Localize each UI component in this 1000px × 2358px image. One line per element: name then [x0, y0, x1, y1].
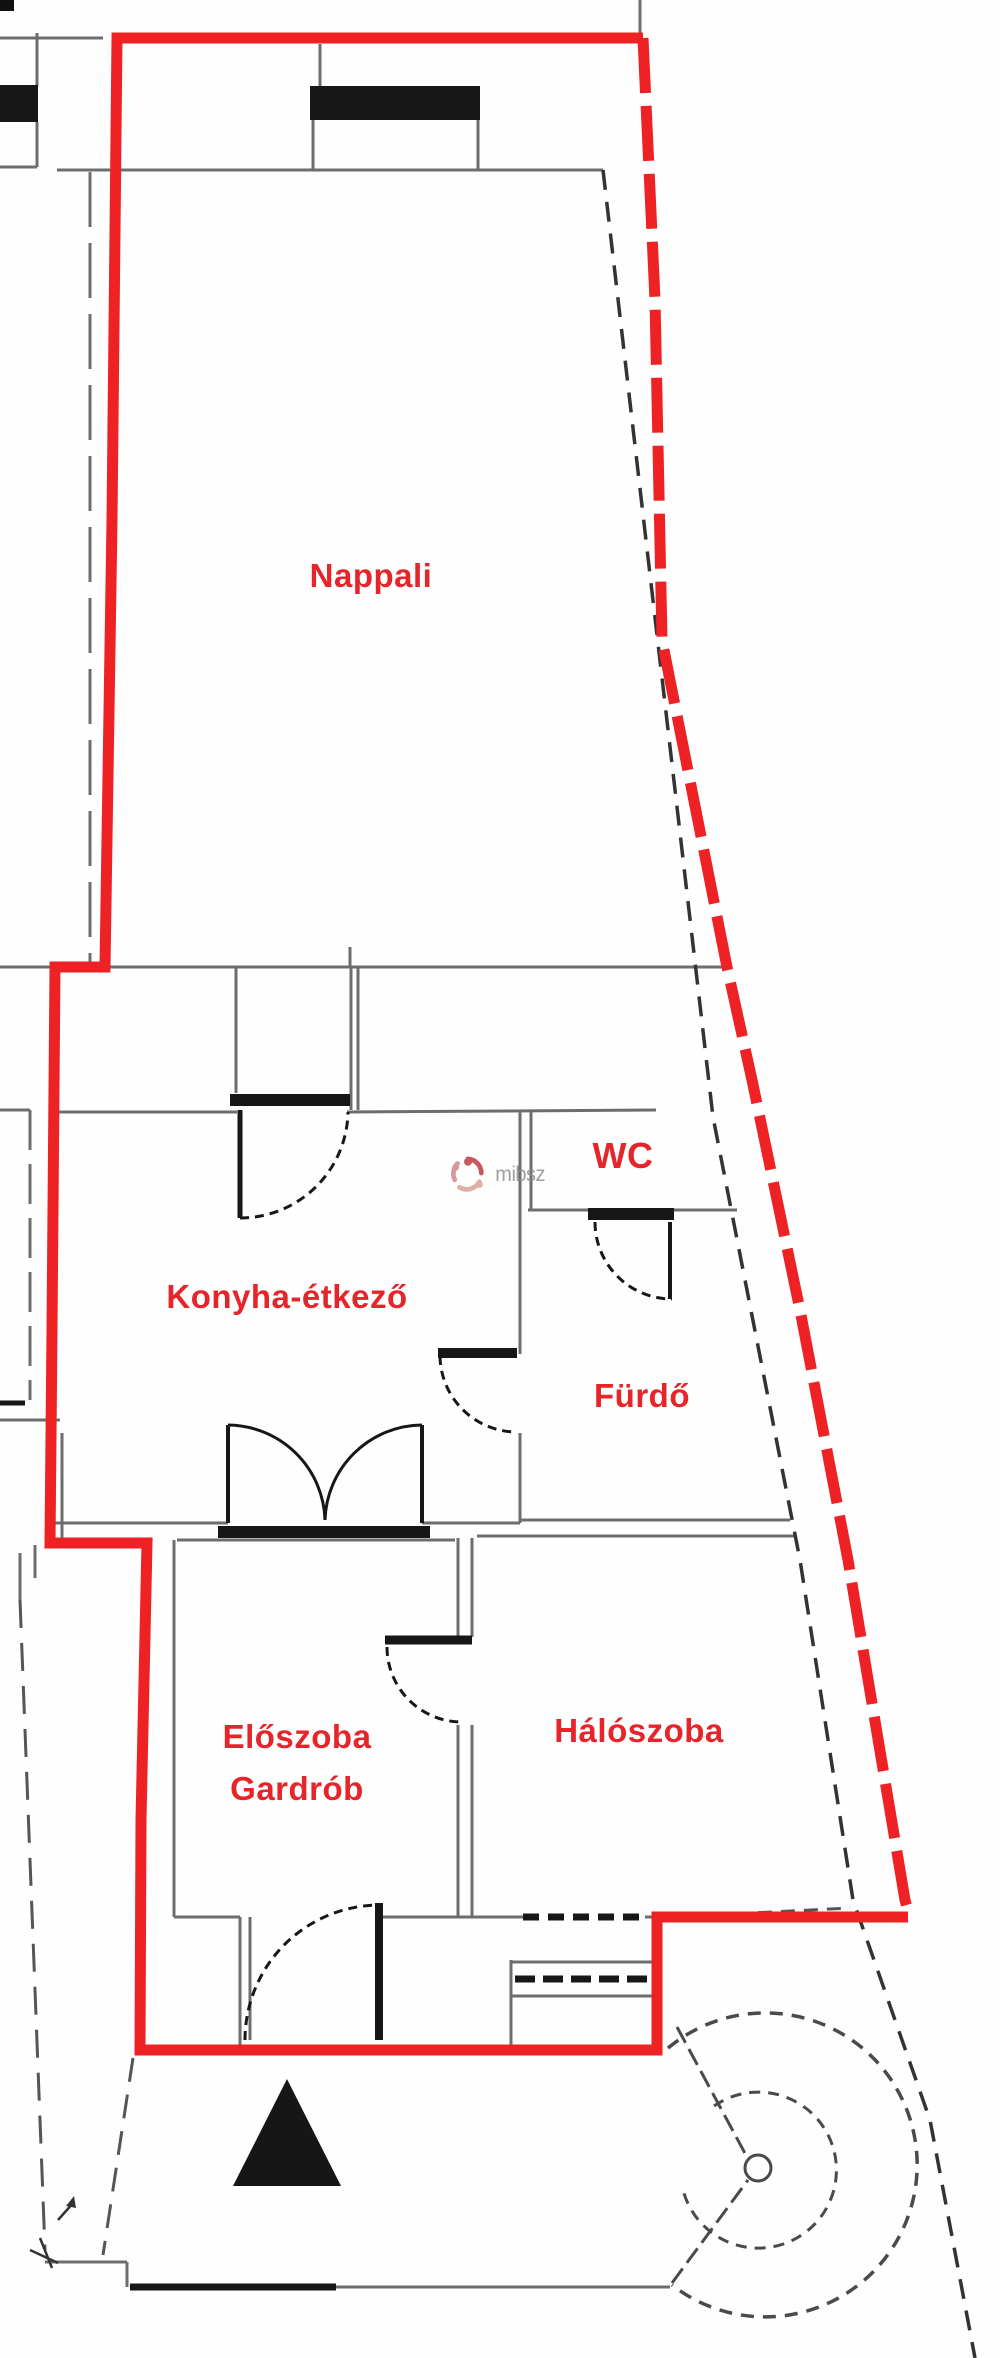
unit-boundary: [50, 38, 910, 2050]
spiral-stair: [668, 2013, 917, 2317]
room-label-furdo: Fürdő: [594, 1377, 690, 1415]
room-label-wc: WC: [593, 1135, 654, 1177]
room-label-eloszoba-gardrob: Előszoba Gardrób: [223, 1711, 372, 1815]
room-label-eloszoba-line2: Gardrób: [223, 1763, 372, 1815]
door-swing-arcs: [228, 1112, 672, 2040]
scan-artifact: [0, 0, 14, 11]
north-arrow-icon: [233, 2079, 341, 2186]
floorplan-image: Nappali Konyha-étkező WC Fürdő Előszoba …: [0, 0, 1000, 2358]
window-icon: [0, 85, 480, 122]
watermark: mibsz: [448, 1156, 546, 1194]
watermark-logo-icon: [448, 1156, 488, 1194]
watermark-text: mibsz: [495, 1163, 545, 1187]
room-label-nappali: Nappali: [310, 557, 433, 595]
survey-marks: [30, 2196, 76, 2268]
room-label-haloszoba: Hálószoba: [554, 1712, 724, 1750]
walls-dashed: [20, 170, 975, 2358]
room-label-eloszoba-line1: Előszoba: [223, 1711, 372, 1763]
room-label-konyha-etkezo: Konyha-étkező: [166, 1278, 407, 1316]
